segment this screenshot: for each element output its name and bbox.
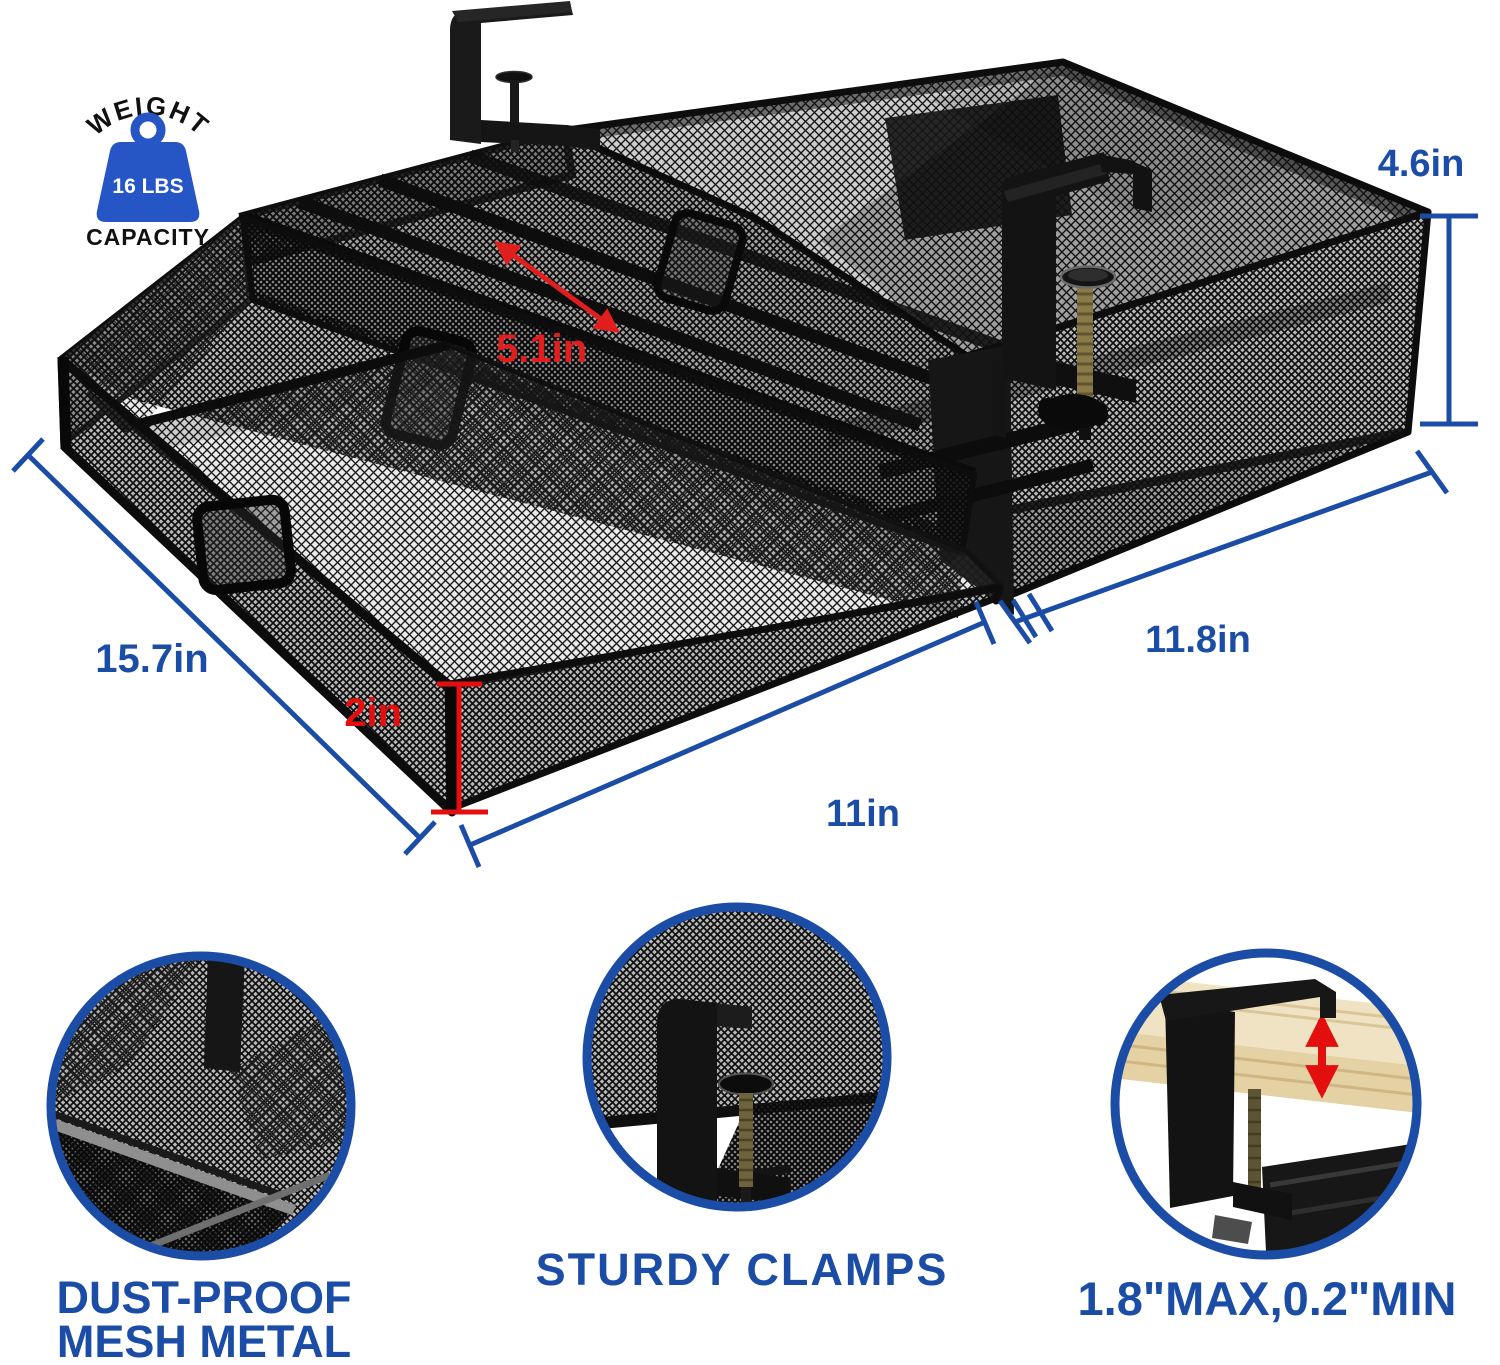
svg-text:16 LBS: 16 LBS [112, 175, 183, 198]
svg-text:STURDY CLAMPS: STURDY CLAMPS [536, 1244, 949, 1295]
svg-text:MESH METAL: MESH METAL [57, 1316, 351, 1365]
svg-text:11.8in: 11.8in [1145, 619, 1251, 661]
svg-text:1.8"MAX,0.2"MIN: 1.8"MAX,0.2"MIN [1078, 1272, 1457, 1325]
svg-text:CAPACITY: CAPACITY [86, 224, 210, 250]
svg-text:2in: 2in [344, 691, 402, 735]
svg-text:15.7in: 15.7in [95, 637, 208, 681]
svg-text:5.1in: 5.1in [496, 327, 587, 371]
svg-text:11in: 11in [826, 793, 900, 835]
svg-text:4.6in: 4.6in [1378, 143, 1465, 185]
